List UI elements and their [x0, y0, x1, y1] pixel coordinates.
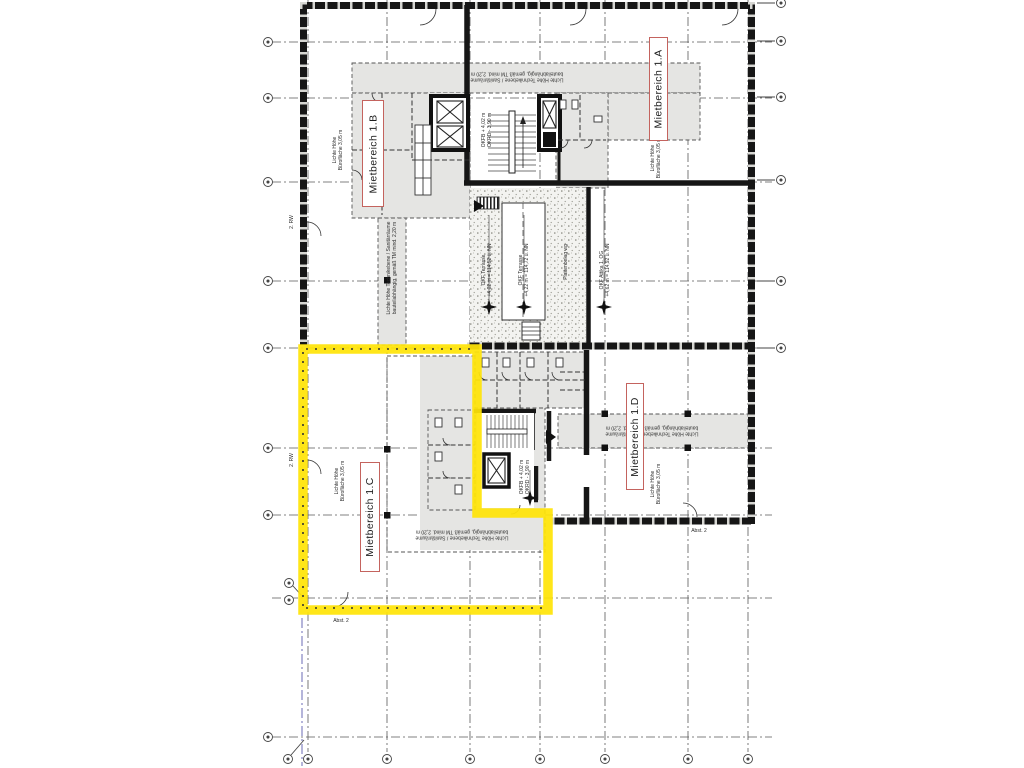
label-mietbereich-1c: Mietbereich 1.C: [360, 462, 380, 572]
annotation-abstand-right: Abst. 2: [691, 528, 707, 534]
annotation-tech-height-1b: Lichte Höhe Technikebene / Sanitärräume …: [386, 221, 399, 314]
annotation-tech-height-1d: Lichte Höhe Technikebene / Sanitärräume …: [605, 424, 698, 437]
annotation-plattenbelag: Plattenbelag wg: [563, 244, 569, 280]
annotation-rescue-route-mid: 2. RW: [289, 453, 295, 467]
label-text: Mietbereich 1.C: [364, 477, 376, 557]
annotation-clear-height-1a: Lichte Höhe Bürofläche 3,05 m: [650, 138, 663, 179]
floor-plan-canvas: Mietbereich 1.A Mietbereich 1.B Mietbere…: [0, 0, 1024, 768]
annotation-okf-attika: OKF Attika 1. OG +4,62 m = 114,92 ü. NN: [599, 244, 612, 297]
annotation-okfb-lower: OKFB + 4,02 m OKRD - 3,90 m: [519, 460, 532, 495]
label-text: Mietbereich 1.B: [367, 114, 379, 193]
annotation-okf-terrasse-low: OKF Terrasse +4,02 m = 114,52 ü. NN: [481, 244, 494, 297]
annotation-okf-terrasse-high: OKF Terrasse +4,22 m = 114,72 ü. NN: [518, 244, 531, 297]
annotation-tech-height-1c: Lichte Höhe Technikebene / Sanitärräume …: [415, 528, 508, 541]
annotation-abstand-bottom: Abst. 2: [333, 618, 349, 624]
label-mietbereich-1b: Mietbereich 1.B: [362, 100, 384, 207]
label-mietbereich-1a: Mietbereich 1.A: [649, 37, 668, 141]
label-mietbereich-1d: Mietbereich 1.D: [626, 383, 644, 490]
label-text: Mietbereich 1.D: [629, 397, 641, 477]
annotation-okfb-upper: OKFB + 4,02 m OKRD - 3,90 m: [481, 113, 494, 148]
annotation-clear-height-1d: Lichte Höhe Bürofläche 3,05 m: [650, 464, 663, 505]
annotation-clear-height-1b: Lichte Höhe Bürofläche 3,05 m: [332, 130, 345, 171]
annotation-clear-height-1c: Lichte Höhe Bürofläche 3,05 m: [334, 461, 347, 502]
label-text: Mietbereich 1.A: [653, 50, 665, 129]
annotation-tech-height-1a: Lichte Höhe Technikebene / Sanitärräume …: [470, 70, 563, 83]
annotation-rescue-route-top: 2. RW: [289, 215, 295, 229]
floor-plan-drawing: [0, 0, 1024, 768]
